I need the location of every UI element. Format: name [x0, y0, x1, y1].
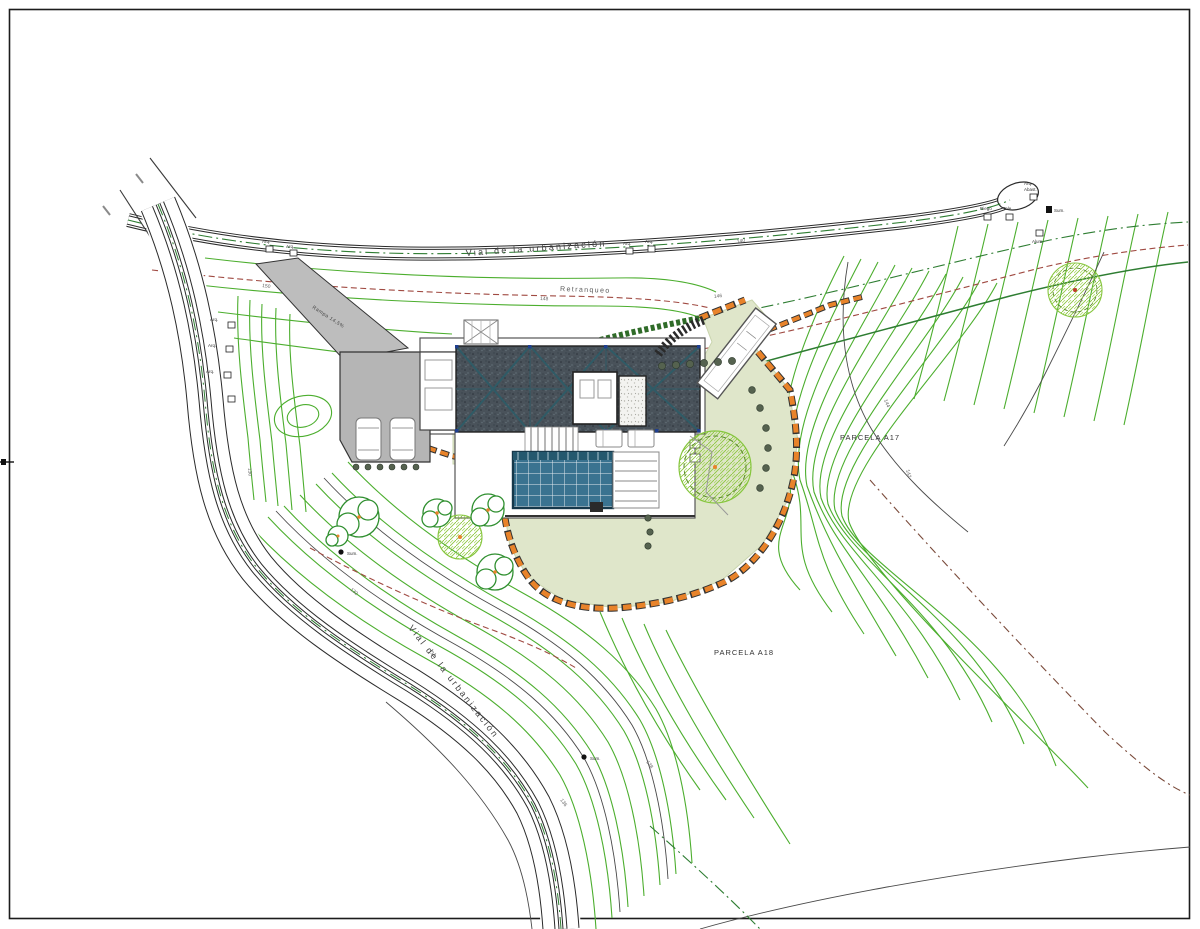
pool-equipment-box	[590, 502, 603, 512]
arq-label: Arq.	[645, 239, 653, 244]
pool-side-steps	[613, 452, 659, 508]
sum-label: Sum.	[1054, 208, 1065, 213]
tree-fluffy	[476, 554, 513, 590]
villa-complex: Rampa 14,5%	[256, 258, 705, 518]
swimming-pool[interactable]	[513, 452, 613, 508]
contour-label: 146	[714, 293, 723, 300]
alum-label: Alum.	[1032, 239, 1044, 244]
sum-label: Sum.	[590, 756, 601, 761]
contour-label: 148	[540, 296, 549, 302]
contour-label: 138	[644, 760, 654, 770]
parcel-bottom-label: PARCELA A18	[714, 648, 774, 657]
contour-label: 144	[882, 399, 891, 409]
arq-label: Arq.	[286, 244, 294, 249]
arq-label: Arq.	[208, 343, 216, 348]
main-steps	[525, 427, 578, 455]
car-1	[356, 418, 381, 460]
sum-label: Sum.	[347, 551, 358, 556]
contour-label: 150	[262, 283, 271, 290]
arq-label: Arq.	[262, 239, 270, 244]
riego-label: Riego	[980, 206, 992, 211]
site-plan-page: Rampa 14,5%	[0, 0, 1200, 929]
arq-label: Arq.	[210, 317, 218, 322]
gravel-patio	[619, 376, 646, 426]
abast-label: Abast.	[1024, 187, 1037, 192]
arq-label: Arq.	[1024, 181, 1032, 186]
tree-cluster	[326, 494, 513, 590]
contour-label: 132	[349, 587, 359, 597]
left-margin-tick	[0, 459, 14, 465]
site-plan-canvas: Rampa 14,5%	[0, 0, 1200, 929]
tree-fluffy	[326, 526, 348, 546]
contour-label: 136	[558, 798, 568, 808]
parcel-right-label: PARCELA A17	[840, 433, 900, 442]
setback-label: Retranqueo	[560, 286, 611, 295]
contour-label: 130	[246, 468, 253, 477]
car-2	[390, 418, 415, 460]
contour-label: 142	[904, 469, 912, 479]
arq-label: Arq.	[206, 369, 214, 374]
tele-label: Tele	[1003, 206, 1012, 211]
tree-fluffy	[422, 499, 452, 527]
entry-pergola	[464, 320, 498, 344]
sum-box	[1046, 206, 1052, 213]
arq-label: Arq.	[623, 241, 631, 246]
contour-label: 140	[736, 238, 745, 245]
tree-hatched-ne	[1048, 263, 1102, 317]
tree-fluffy	[471, 494, 504, 526]
